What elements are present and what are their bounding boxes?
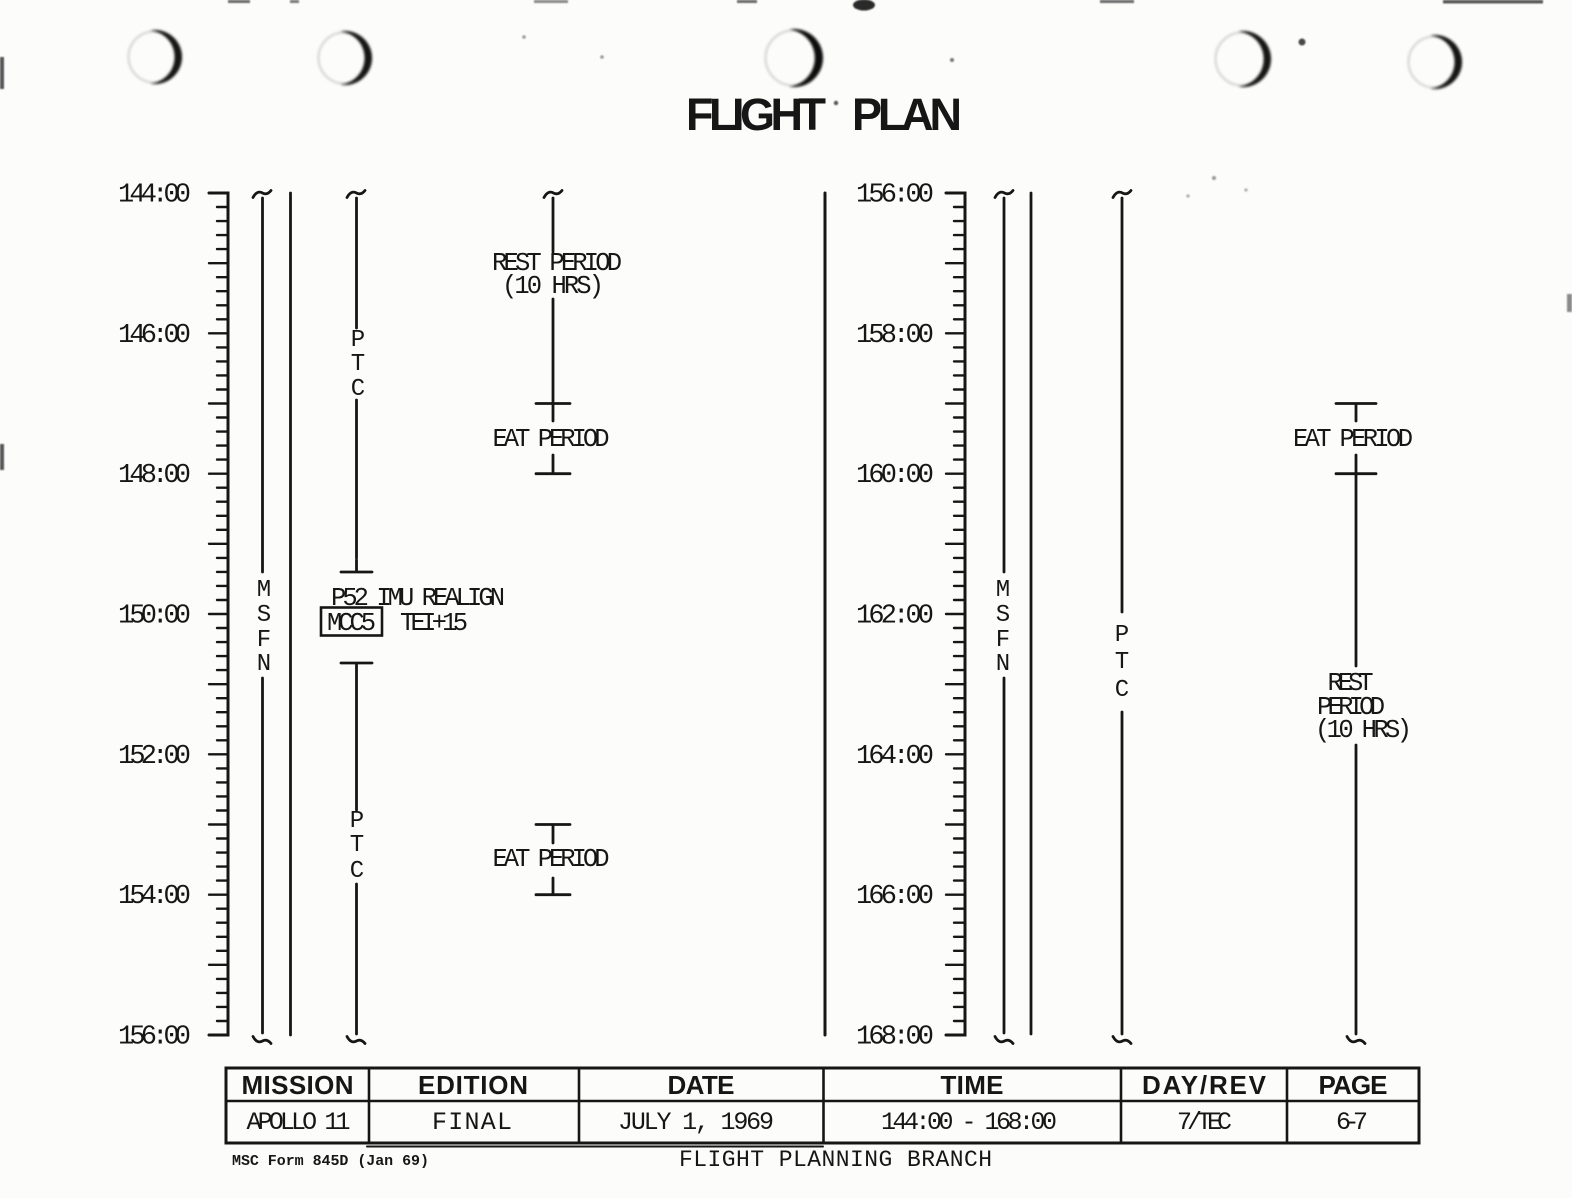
svg-text:MSC Form 845D (Jan 69): MSC Form 845D (Jan 69) — [232, 1153, 429, 1170]
svg-text:152:00: 152:00 — [118, 742, 191, 772]
svg-text:S: S — [257, 602, 271, 629]
svg-text:MISSION: MISSION — [242, 1070, 354, 1100]
svg-text:MCC5: MCC5 — [327, 609, 376, 638]
svg-text:EAT PERIOD: EAT PERIOD — [493, 845, 610, 874]
svg-text:TEI+15: TEI+15 — [400, 609, 468, 638]
svg-text:168:00: 168:00 — [856, 1023, 934, 1053]
svg-text:C: C — [350, 858, 364, 885]
svg-text:T: T — [351, 351, 365, 378]
svg-text:146:00: 146:00 — [118, 321, 191, 351]
svg-text:7/TEC: 7/TEC — [1177, 1108, 1232, 1137]
svg-text:T: T — [350, 832, 364, 859]
svg-text:M: M — [996, 577, 1010, 604]
svg-text:S: S — [996, 602, 1010, 629]
svg-text:FLIGHT: FLIGHT — [686, 89, 826, 140]
svg-text:DAY/REV: DAY/REV — [1142, 1070, 1267, 1100]
svg-text:P: P — [1115, 622, 1129, 649]
svg-text:150:00: 150:00 — [118, 602, 191, 632]
svg-text:154:00: 154:00 — [118, 882, 191, 912]
svg-text:C: C — [1115, 677, 1129, 704]
svg-text:148:00: 148:00 — [118, 461, 191, 491]
svg-text:N: N — [257, 651, 271, 678]
svg-text:JULY 1, 1969: JULY 1, 1969 — [618, 1108, 774, 1137]
svg-text:FLIGHT PLANNING BRANCH: FLIGHT PLANNING BRANCH — [679, 1147, 992, 1173]
svg-text:144:00 - 168:00: 144:00 - 168:00 — [881, 1108, 1057, 1137]
svg-text:PLAN: PLAN — [852, 89, 962, 140]
svg-text:EDITION: EDITION — [418, 1070, 528, 1100]
svg-text:158:00: 158:00 — [856, 321, 934, 351]
svg-text:P: P — [350, 808, 364, 835]
svg-text:DATE: DATE — [668, 1070, 735, 1100]
svg-text:C: C — [351, 376, 365, 403]
svg-text:T: T — [1115, 649, 1129, 676]
svg-text:PAGE: PAGE — [1319, 1070, 1388, 1100]
svg-text:156:00: 156:00 — [856, 181, 934, 211]
svg-text:F: F — [257, 627, 271, 654]
svg-text:(10 HRS): (10 HRS) — [1315, 716, 1412, 745]
svg-text:F: F — [996, 627, 1010, 654]
svg-text:164:00: 164:00 — [856, 742, 934, 772]
svg-text:M: M — [257, 577, 271, 604]
svg-text:FINAL: FINAL — [432, 1108, 512, 1137]
svg-text:(10 HRS): (10 HRS) — [502, 272, 604, 301]
svg-text:160:00: 160:00 — [856, 461, 934, 491]
svg-text:EAT PERIOD: EAT PERIOD — [493, 425, 610, 454]
svg-text:N: N — [996, 651, 1010, 678]
svg-text:166:00: 166:00 — [856, 882, 934, 912]
svg-text:6-7: 6-7 — [1336, 1108, 1368, 1137]
svg-text:P: P — [351, 327, 365, 354]
svg-text:162:00: 162:00 — [856, 602, 934, 632]
svg-text:156:00: 156:00 — [118, 1023, 191, 1053]
svg-text:APOLLO 11: APOLLO 11 — [247, 1108, 351, 1137]
svg-text:144:00: 144:00 — [118, 181, 191, 211]
svg-text:TIME: TIME — [941, 1070, 1004, 1100]
svg-text:EAT PERIOD: EAT PERIOD — [1293, 425, 1413, 454]
